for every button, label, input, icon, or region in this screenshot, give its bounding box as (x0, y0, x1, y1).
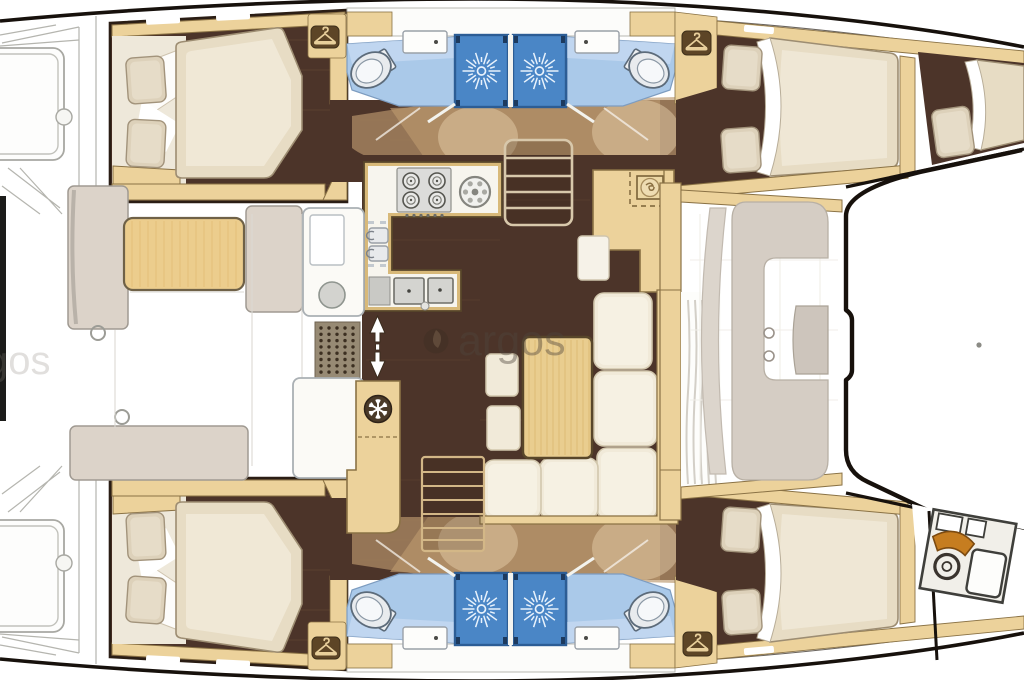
svg-text:argos: argos (458, 317, 566, 365)
svg-text:gos: gos (0, 339, 51, 383)
